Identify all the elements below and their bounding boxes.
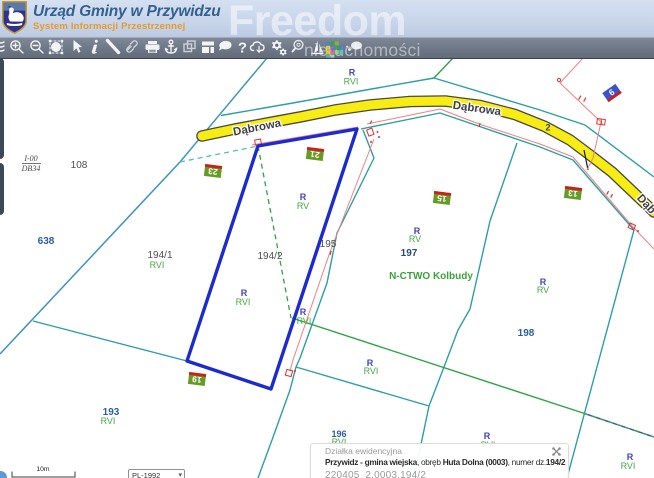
svg-text:RVI: RVI: [297, 316, 312, 326]
svg-text:RVI: RVI: [150, 260, 165, 270]
svg-text:RVI: RVI: [236, 297, 251, 307]
svg-text:DB34: DB34: [21, 164, 41, 173]
svg-text:23: 23: [207, 166, 218, 177]
svg-text:I-00: I-00: [23, 154, 37, 163]
svg-text:13: 13: [567, 188, 578, 199]
svg-text:RVI: RVI: [364, 366, 379, 376]
svg-text:RVI: RVI: [621, 461, 636, 471]
svg-text:RV: RV: [409, 234, 421, 244]
svg-text:Dąbrowa: Dąbrowa: [452, 100, 502, 119]
svg-text:N-CTWO Kolbudy: N-CTWO Kolbudy: [389, 271, 473, 282]
svg-text:2: 2: [545, 123, 550, 133]
svg-text:15: 15: [436, 193, 447, 204]
svg-text:RVI: RVI: [344, 77, 359, 87]
svg-text:108: 108: [71, 160, 88, 171]
svg-text:195: 195: [320, 239, 337, 250]
svg-text:21: 21: [309, 149, 320, 160]
svg-text:194/2: 194/2: [257, 251, 282, 262]
svg-text:RV: RV: [537, 285, 549, 295]
svg-text:10m: 10m: [36, 466, 50, 473]
svg-text:197: 197: [401, 248, 418, 259]
svg-text:198: 198: [518, 328, 535, 339]
svg-text:RVI: RVI: [101, 416, 116, 426]
svg-text:638: 638: [38, 236, 55, 247]
svg-text:RV: RV: [297, 201, 309, 211]
svg-text:19: 19: [191, 374, 202, 385]
